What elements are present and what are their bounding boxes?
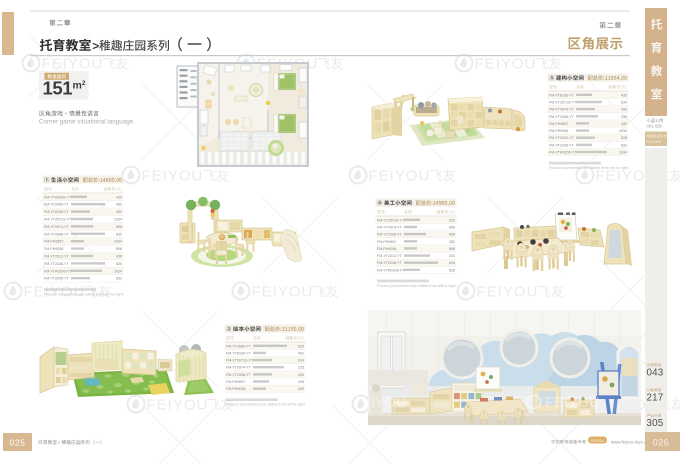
svg-text:FM-YT2012-YT: FM-YT2012-YT bbox=[549, 136, 575, 140]
svg-text:FM-YT0974-YT: FM-YT0974-YT bbox=[44, 225, 70, 229]
svg-text:698: 698 bbox=[116, 225, 122, 229]
svg-text:439: 439 bbox=[621, 115, 627, 119]
svg-text:FM-YT2012-YT: FM-YT2012-YT bbox=[44, 255, 70, 259]
svg-text:FM-YT8106-YT: FM-YT8106-YT bbox=[44, 210, 70, 214]
svg-text:439: 439 bbox=[298, 380, 304, 384]
svg-text:1034: 1034 bbox=[114, 269, 122, 273]
svg-text:634: 634 bbox=[621, 101, 627, 105]
svg-text:698: 698 bbox=[449, 226, 455, 230]
svg-text:439: 439 bbox=[621, 93, 627, 97]
svg-text:FM-YT2071S-YT: FM-YT2071S-YT bbox=[226, 359, 254, 363]
svg-text:FM-YT2005-YT: FM-YT2005-YT bbox=[44, 277, 70, 281]
svg-text:FEIYOU: FEIYOU bbox=[42, 56, 104, 73]
svg-text:FM-YT2680-YT: FM-YT2680-YT bbox=[226, 344, 252, 348]
svg-text:1034: 1034 bbox=[619, 151, 627, 155]
svg-text:FEIYOU: FEIYOU bbox=[545, 395, 600, 410]
svg-text:832: 832 bbox=[116, 232, 122, 236]
svg-text:634: 634 bbox=[298, 359, 304, 363]
svg-text:FM-YTR0206-YT: FM-YTR0206-YT bbox=[377, 268, 405, 272]
svg-text:FM-YT8106-YT: FM-YT8106-YT bbox=[549, 93, 575, 97]
svg-text:1034: 1034 bbox=[114, 240, 122, 244]
svg-text:439: 439 bbox=[116, 255, 122, 259]
svg-text:439: 439 bbox=[621, 108, 627, 112]
svg-text:305: 305 bbox=[647, 418, 664, 429]
svg-text:FM-YTR0206-YT: FM-YTR0206-YT bbox=[549, 151, 577, 155]
svg-text:FM-PH9657: FM-PH9657 bbox=[549, 122, 568, 126]
svg-text:>: > bbox=[92, 39, 99, 53]
svg-text:625: 625 bbox=[116, 262, 122, 266]
svg-text:FM-YT2098-YT: FM-YT2098-YT bbox=[549, 115, 575, 119]
svg-text:Product parameters are edited: Product parameters are edited from left … bbox=[44, 292, 124, 296]
svg-text:698: 698 bbox=[116, 247, 122, 251]
svg-text:233: 233 bbox=[449, 254, 455, 258]
svg-text:528: 528 bbox=[621, 136, 627, 140]
svg-text:Product parameters are edited: Product parameters are edited from left … bbox=[226, 403, 306, 407]
svg-text:528: 528 bbox=[449, 268, 455, 272]
svg-text:FM-YT2071S-YT: FM-YT2071S-YT bbox=[44, 218, 72, 222]
svg-text:698: 698 bbox=[449, 247, 455, 251]
svg-text:FM-YT2248-YT: FM-YT2248-YT bbox=[44, 262, 70, 266]
svg-text:FEIYOU: FEIYOU bbox=[369, 168, 431, 185]
svg-text:FM-PH9657: FM-PH9657 bbox=[44, 240, 63, 244]
svg-text:452: 452 bbox=[116, 210, 122, 214]
svg-text:FM-PH9657: FM-PH9657 bbox=[377, 240, 396, 244]
svg-text:FM-YT2680-YT: FM-YT2680-YT bbox=[44, 203, 70, 207]
svg-text:FEIYOU: FEIYOU bbox=[142, 168, 204, 185]
svg-text:625: 625 bbox=[449, 261, 455, 265]
svg-text:FM-PH9036: FM-PH9036 bbox=[226, 387, 245, 391]
svg-text:FM-YT2248-YT: FM-YT2248-YT bbox=[377, 261, 403, 265]
svg-text:FM-YT2012-YT: FM-YT2012-YT bbox=[377, 254, 403, 258]
svg-text:FM-YT2098-YT: FM-YT2098-YT bbox=[377, 233, 403, 237]
svg-text:FM-PH9657: FM-PH9657 bbox=[226, 380, 245, 384]
svg-text:FM-YT2071S-YT: FM-YT2071S-YT bbox=[377, 218, 405, 222]
svg-text:1034: 1034 bbox=[619, 129, 627, 133]
svg-text:832: 832 bbox=[621, 143, 627, 147]
svg-text:233: 233 bbox=[298, 366, 304, 370]
svg-text:FM-YT6300S-YT: FM-YT6300S-YT bbox=[44, 195, 72, 199]
svg-text:025: 025 bbox=[10, 438, 26, 448]
svg-text:026: 026 bbox=[653, 438, 670, 448]
svg-text:>: > bbox=[58, 440, 61, 445]
svg-text:001-026: 001-026 bbox=[647, 124, 663, 129]
svg-text:233: 233 bbox=[449, 218, 455, 222]
svg-text:FM-PH9036: FM-PH9036 bbox=[44, 247, 63, 251]
svg-text:FM-YT2098-YT: FM-YT2098-YT bbox=[44, 232, 70, 236]
svg-text:FM-YT0974-YT: FM-YT0974-YT bbox=[226, 366, 252, 370]
svg-text:452: 452 bbox=[298, 351, 304, 355]
svg-text:FM-YT2098-YT: FM-YT2098-YT bbox=[226, 373, 252, 377]
svg-text:439: 439 bbox=[298, 387, 304, 391]
svg-text:439: 439 bbox=[116, 195, 122, 199]
svg-text:FM-YTR0206-YT: FM-YTR0206-YT bbox=[44, 269, 72, 273]
svg-text:Product parameters are edited: Product parameters are edited from left … bbox=[377, 284, 457, 288]
svg-text:FM-YT0974-YT: FM-YT0974-YT bbox=[549, 108, 575, 112]
svg-text:Product parameters are edited: Product parameters are edited from left … bbox=[549, 166, 629, 170]
svg-text:FEIYOU: FEIYOU bbox=[252, 284, 314, 301]
svg-text:FEIYOU: FEIYOU bbox=[147, 397, 209, 414]
svg-text:043: 043 bbox=[647, 368, 664, 379]
svg-text:Corner game situational langua: Corner game situational language. bbox=[39, 118, 136, 125]
svg-text:151: 151 bbox=[43, 78, 73, 99]
svg-text:FEIYOU: FEIYOU bbox=[591, 439, 604, 443]
svg-text:832: 832 bbox=[116, 277, 122, 281]
svg-text:FEIYOU: FEIYOU bbox=[475, 56, 537, 73]
svg-text:021-042: 021-042 bbox=[647, 139, 662, 144]
svg-text:439: 439 bbox=[298, 373, 304, 377]
svg-text:625: 625 bbox=[298, 344, 304, 348]
svg-text:FM-YT2071S-YT: FM-YT2071S-YT bbox=[549, 101, 577, 105]
svg-text:FM-PH9036: FM-PH9036 bbox=[377, 247, 396, 251]
svg-text:FM-PH9036: FM-PH9036 bbox=[549, 129, 568, 133]
svg-text:FM-YT8106-YT: FM-YT8106-YT bbox=[226, 351, 252, 355]
svg-text:217: 217 bbox=[647, 393, 664, 404]
svg-text:FM-YT0974-YT: FM-YT0974-YT bbox=[377, 226, 403, 230]
svg-text:452: 452 bbox=[449, 240, 455, 244]
svg-text:452: 452 bbox=[116, 203, 122, 207]
svg-text:FEIYOU: FEIYOU bbox=[477, 284, 539, 301]
svg-text:FM-YT2248-YT: FM-YT2248-YT bbox=[549, 143, 575, 147]
svg-text:439: 439 bbox=[621, 122, 627, 126]
svg-text:1034: 1034 bbox=[114, 218, 122, 222]
svg-text:634: 634 bbox=[449, 233, 455, 237]
